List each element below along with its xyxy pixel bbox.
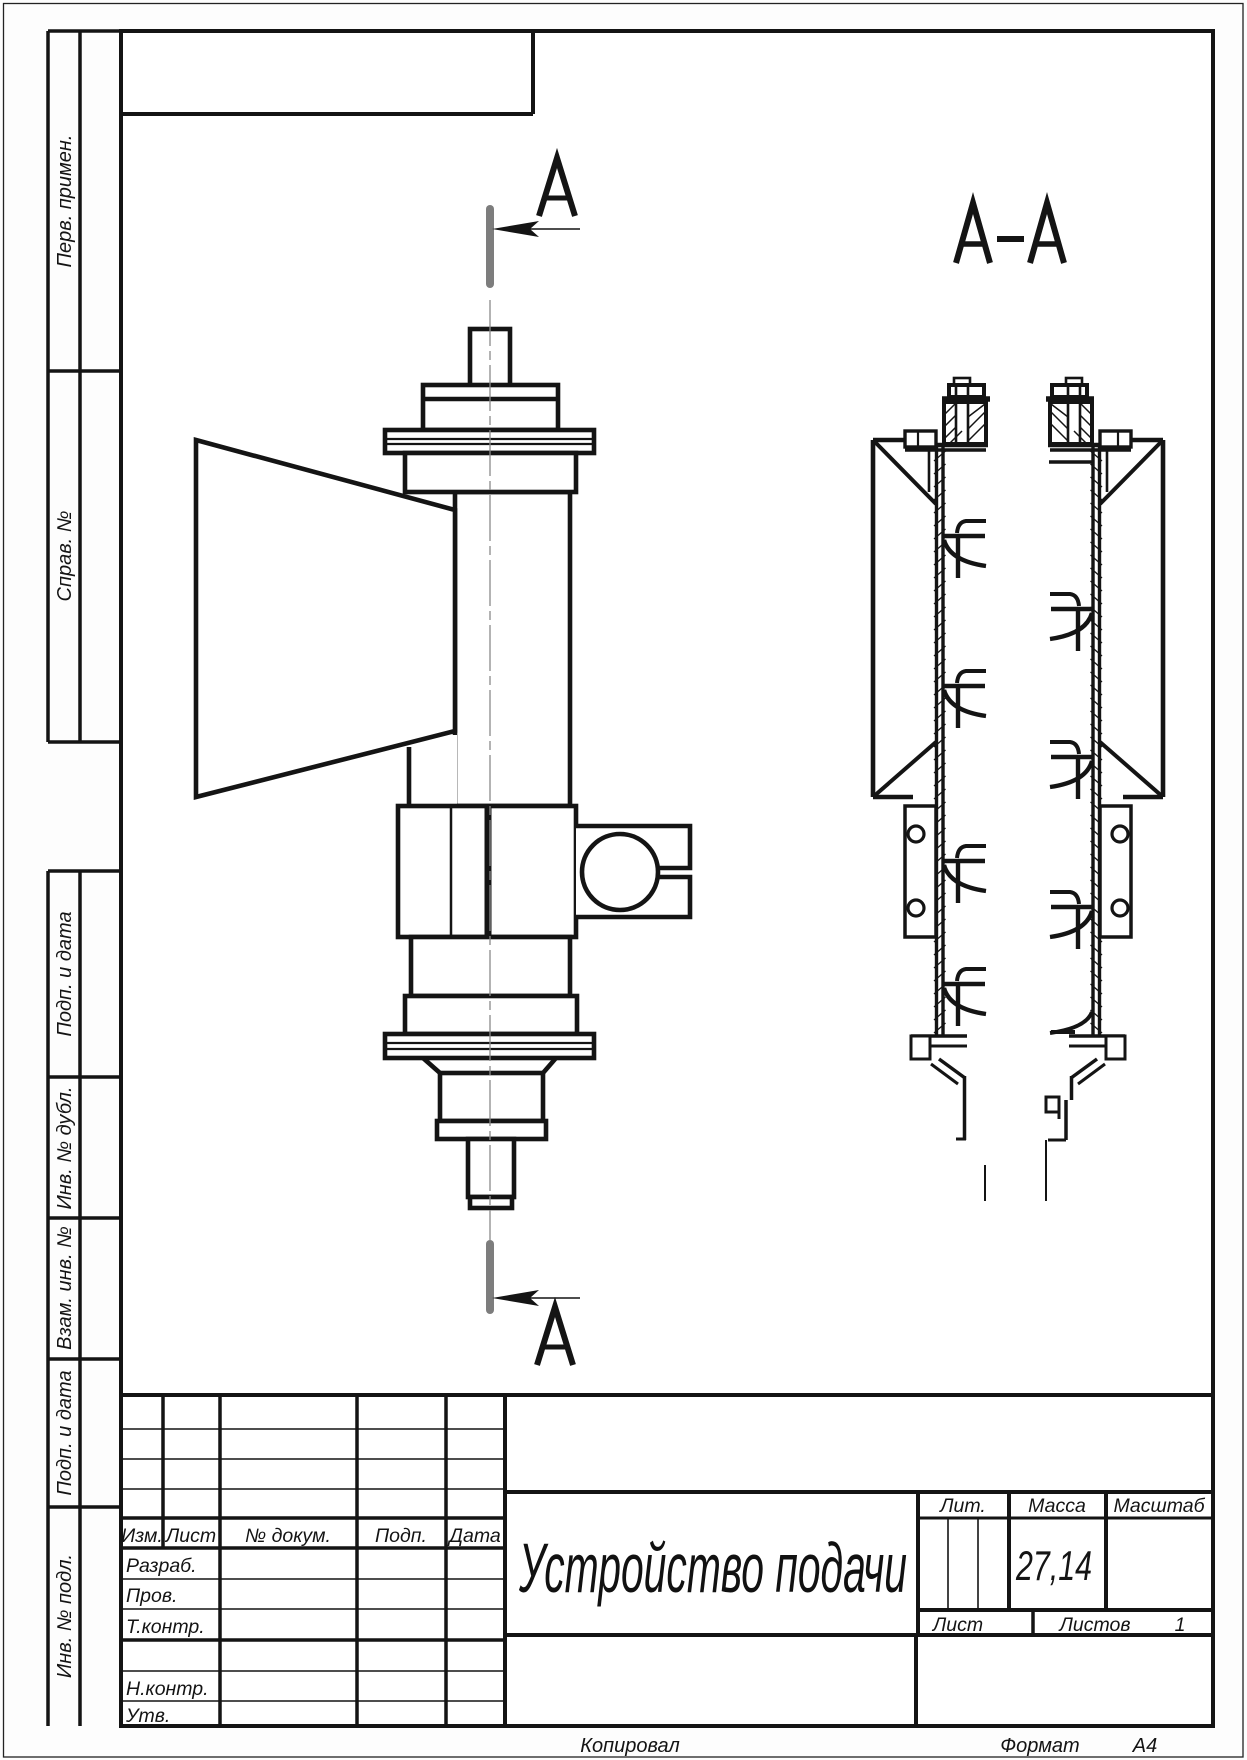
svg-text:Дата: Дата bbox=[447, 1525, 501, 1547]
svg-text:Справ. №: Справ. № bbox=[54, 511, 76, 602]
svg-text:Пров.: Пров. bbox=[126, 1585, 177, 1607]
svg-text:Масштаб: Масштаб bbox=[1113, 1495, 1205, 1517]
svg-text:Формат: Формат bbox=[1000, 1735, 1079, 1757]
svg-text:Н.контр.: Н.контр. bbox=[126, 1678, 209, 1700]
svg-text:Подп. и дата: Подп. и дата bbox=[54, 1370, 76, 1495]
svg-text:Подп.: Подп. bbox=[375, 1525, 427, 1547]
svg-text:Копировал: Копировал bbox=[580, 1735, 679, 1757]
svg-text:Разраб.: Разраб. bbox=[126, 1555, 197, 1577]
svg-text:Лит.: Лит. bbox=[938, 1495, 986, 1517]
svg-text:27,14: 27,14 bbox=[1015, 1542, 1092, 1589]
svg-text:Масса: Масса bbox=[1028, 1495, 1086, 1517]
svg-text:Листов: Листов bbox=[1057, 1614, 1130, 1636]
svg-text:А4: А4 bbox=[1132, 1735, 1157, 1757]
svg-text:Подп. и дата: Подп. и дата bbox=[54, 911, 76, 1036]
svg-text:Перв. примен.: Перв. примен. bbox=[54, 135, 76, 268]
svg-text:Устройство подачи: Устройство подачи bbox=[518, 1529, 907, 1607]
svg-text:Взам. инв. №: Взам. инв. № bbox=[54, 1226, 76, 1350]
svg-text:1: 1 bbox=[1175, 1614, 1186, 1636]
svg-text:Изм.: Изм. bbox=[121, 1525, 163, 1547]
svg-text:№ докум.: № докум. bbox=[245, 1525, 331, 1547]
svg-text:Т.контр.: Т.контр. bbox=[126, 1616, 205, 1638]
svg-text:Утв.: Утв. bbox=[125, 1705, 170, 1727]
svg-text:Инв. № дубл.: Инв. № дубл. bbox=[54, 1087, 76, 1210]
svg-text:Инв. № подл.: Инв. № подл. bbox=[54, 1554, 76, 1678]
svg-text:Лист: Лист bbox=[164, 1525, 216, 1547]
svg-text:Лист: Лист bbox=[931, 1614, 983, 1636]
